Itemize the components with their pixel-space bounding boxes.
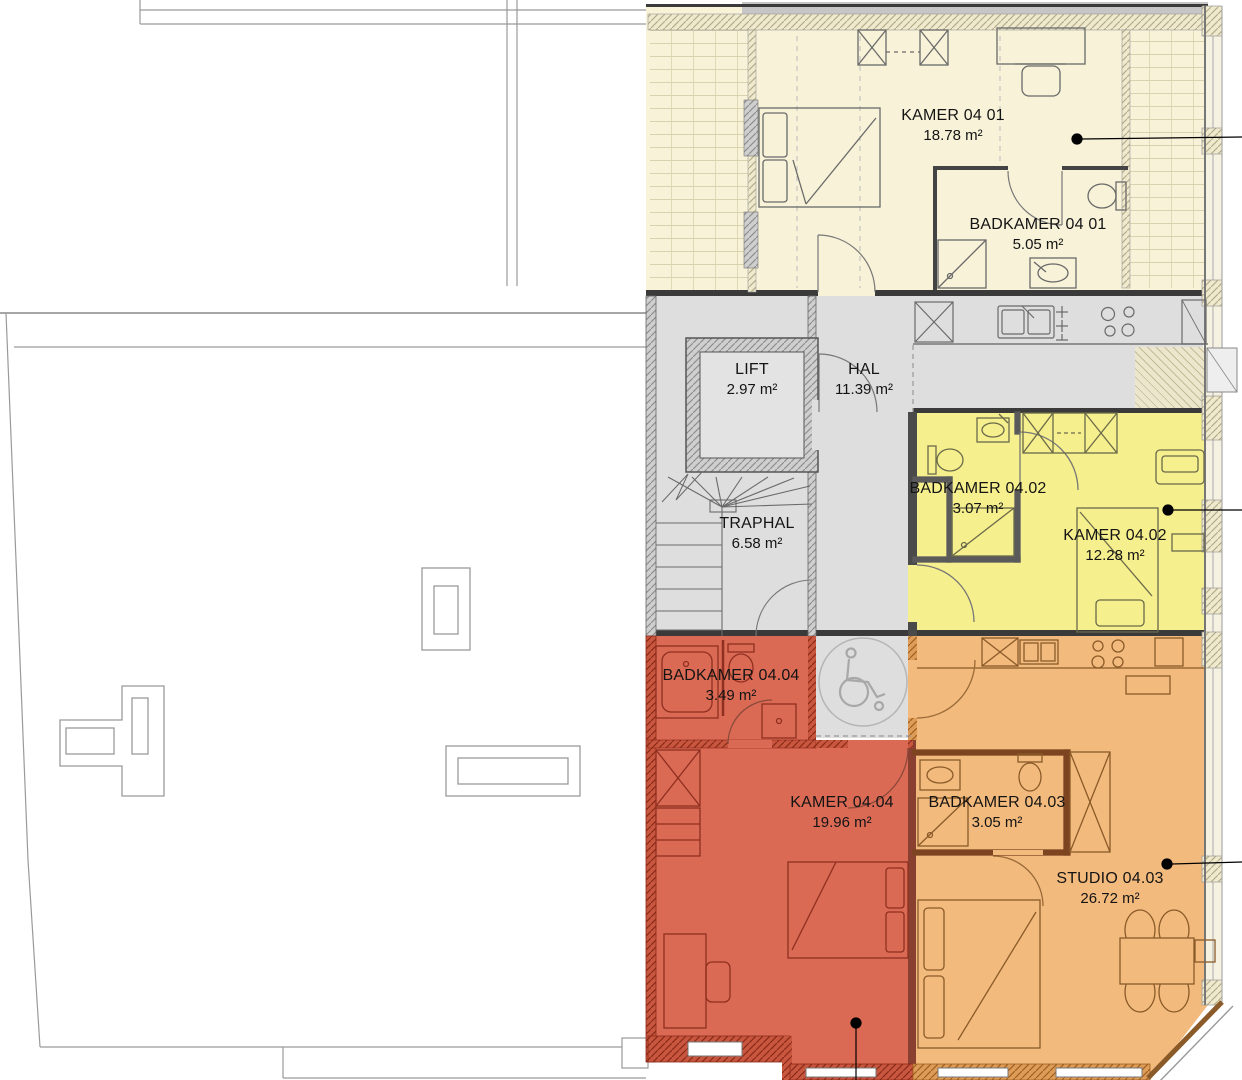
toilet-0403 bbox=[1018, 754, 1042, 791]
wardrobe-0402 bbox=[1023, 413, 1117, 453]
dining-set-0403 bbox=[1120, 910, 1215, 1012]
label-badkamer-0403: BADKAMER 04.033.05 m² bbox=[928, 793, 1065, 832]
sink-0402 bbox=[977, 414, 1009, 442]
kitchen-dishwasher-marks bbox=[1056, 306, 1068, 340]
unit-0402-interior bbox=[913, 412, 1204, 632]
wardrobe-0401 bbox=[858, 30, 948, 65]
closet-0404 bbox=[656, 750, 700, 856]
desk-0404 bbox=[664, 934, 730, 1028]
wheelchair-turning-circle bbox=[819, 638, 907, 726]
desk-0401 bbox=[997, 28, 1085, 96]
sink-0401 bbox=[1030, 258, 1076, 288]
bed-0404 bbox=[788, 862, 908, 958]
badkamer-0403-door-arc bbox=[993, 856, 1043, 906]
marker-0401 bbox=[1072, 134, 1082, 144]
sink-0403 bbox=[920, 760, 960, 790]
roof-skylights bbox=[60, 568, 580, 796]
bed-0401 bbox=[759, 108, 880, 207]
bed-0403 bbox=[918, 900, 1040, 1048]
entry-door-0401-arc bbox=[818, 235, 875, 292]
kamer-0402-door-arc bbox=[917, 565, 974, 622]
site-outlines bbox=[0, 0, 648, 1078]
unit-0403-interior bbox=[913, 638, 1215, 1048]
stairs-traphal bbox=[656, 472, 812, 636]
shelf-0403 bbox=[1126, 676, 1170, 694]
marker-0404 bbox=[851, 1018, 861, 1028]
bottom-facade bbox=[648, 1002, 1233, 1080]
toilet-0401 bbox=[1088, 182, 1126, 210]
tall-cabinet-0403 bbox=[1070, 752, 1110, 852]
wheelchair-icon bbox=[840, 649, 885, 711]
floor-plan: KAMER 04 0118.78 m² BADKAMER 04 015.05 m… bbox=[0, 0, 1242, 1080]
right-facade bbox=[1202, 6, 1237, 1005]
kitchen-sink bbox=[998, 306, 1054, 338]
marker-0402 bbox=[1163, 505, 1173, 515]
desk-0402 bbox=[1172, 534, 1204, 551]
sink-0404 bbox=[762, 704, 796, 738]
armchair-0402 bbox=[1156, 450, 1204, 484]
plan-linework bbox=[0, 0, 1242, 1080]
kitchenette-0403 bbox=[982, 638, 1183, 668]
traphal-door-arc bbox=[756, 580, 812, 636]
label-kamer-0401: KAMER 04 0118.78 m² bbox=[901, 106, 1005, 145]
label-studio-0403: STUDIO 04.0326.72 m² bbox=[1056, 869, 1163, 908]
kitchen-cooktop bbox=[1102, 307, 1135, 336]
studio-entry-arc bbox=[917, 660, 975, 718]
toilet-0402 bbox=[928, 446, 963, 474]
marker-0403 bbox=[1162, 859, 1172, 869]
label-kamer-0402: KAMER 04.0212.28 m² bbox=[1063, 526, 1167, 565]
label-hal: HAL11.39 m² bbox=[835, 360, 893, 399]
label-badkamer-0402: BADKAMER 04.023.07 m² bbox=[909, 479, 1046, 518]
lift-shaft bbox=[686, 338, 820, 472]
label-badkamer-0404: BADKAMER 04.043.49 m² bbox=[662, 666, 799, 705]
label-kamer-0404: KAMER 04.0419.96 m² bbox=[790, 793, 894, 832]
label-traphal: TRAPHAL6.58 m² bbox=[719, 514, 794, 553]
label-lift: LIFT2.97 m² bbox=[727, 360, 778, 399]
label-badkamer-0401: BADKAMER 04 015.05 m² bbox=[969, 215, 1106, 254]
